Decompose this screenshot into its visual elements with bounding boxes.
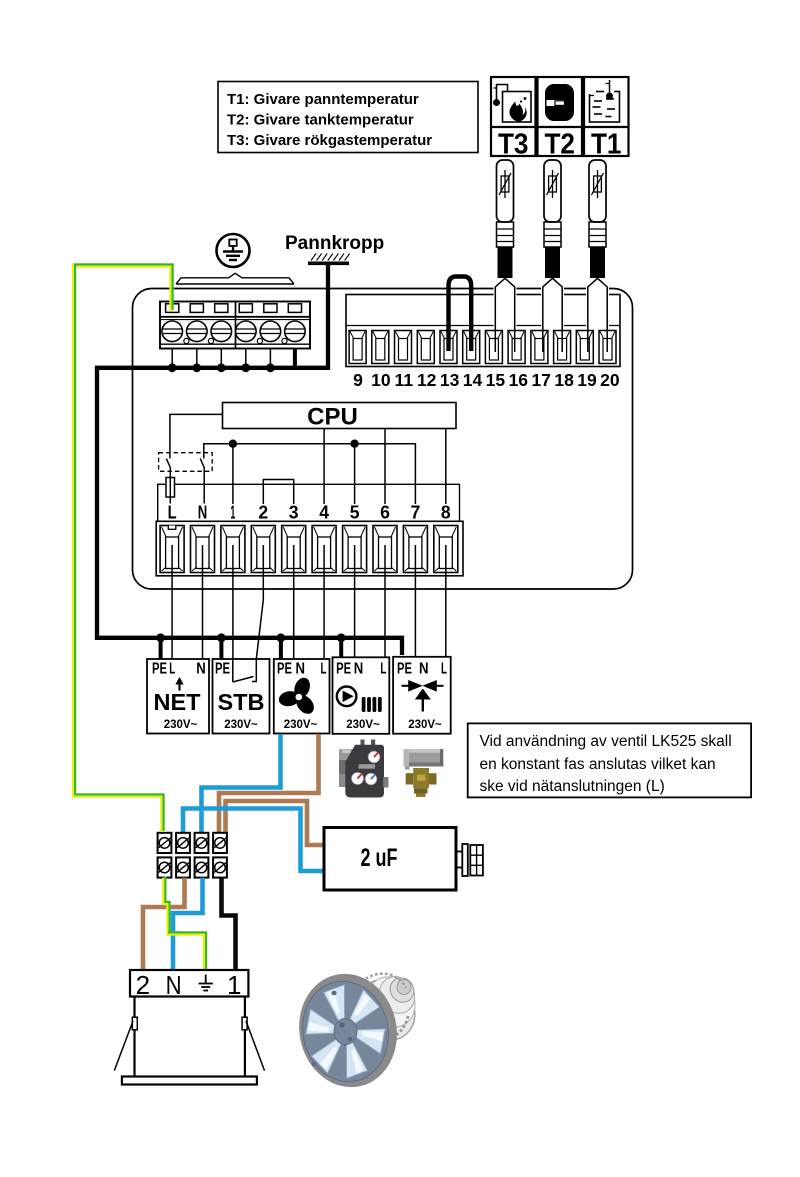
- svg-text:2: 2: [136, 970, 150, 1000]
- svg-text:230V~: 230V~: [224, 719, 258, 731]
- svg-text:1: 1: [230, 502, 235, 523]
- svg-text:15: 15: [486, 370, 506, 390]
- svg-text:230V~: 230V~: [164, 719, 198, 731]
- svg-text:230V~: 230V~: [346, 719, 380, 731]
- svg-text:3: 3: [289, 502, 299, 523]
- svg-text:10: 10: [371, 370, 391, 390]
- svg-text:9: 9: [353, 370, 363, 390]
- svg-text:13: 13: [440, 370, 460, 390]
- svg-text:PE: PE: [152, 661, 167, 678]
- svg-text:11: 11: [395, 370, 414, 390]
- svg-text:Pannkropp: Pannkropp: [285, 233, 384, 254]
- svg-text:1: 1: [227, 970, 241, 1000]
- svg-text:ske vid nätanslutningen (L): ske vid nätanslutningen (L): [480, 778, 665, 795]
- svg-text:L: L: [169, 661, 175, 678]
- svg-text:14: 14: [463, 370, 483, 390]
- svg-text:Vid användning av ventil LK525: Vid användning av ventil LK525 skall: [480, 733, 732, 750]
- svg-text:2 uF: 2 uF: [361, 844, 398, 872]
- svg-text:230V~: 230V~: [284, 719, 318, 731]
- svg-text:8: 8: [441, 502, 451, 523]
- svg-text:4: 4: [319, 502, 329, 523]
- svg-text:7: 7: [411, 502, 421, 523]
- svg-text:L: L: [321, 661, 327, 678]
- svg-text:L: L: [168, 502, 177, 523]
- svg-text:CPU: CPU: [307, 404, 358, 431]
- svg-text:T1: T1: [591, 129, 622, 161]
- svg-text:N: N: [198, 502, 208, 523]
- svg-text:5: 5: [350, 502, 360, 523]
- svg-text:6: 6: [380, 502, 390, 523]
- svg-text:en konstant fas anslutas vilke: en konstant fas anslutas vilket kan: [480, 756, 716, 773]
- svg-text:230V~: 230V~: [408, 719, 442, 731]
- svg-text:16: 16: [509, 370, 529, 390]
- svg-text:19: 19: [577, 370, 597, 390]
- svg-text:L: L: [441, 661, 447, 678]
- svg-text:N: N: [419, 661, 429, 678]
- svg-text:12: 12: [417, 370, 437, 390]
- svg-text:2: 2: [258, 502, 268, 523]
- svg-text:NET: NET: [154, 689, 202, 715]
- svg-text:N: N: [296, 661, 306, 678]
- svg-text:18: 18: [554, 370, 574, 390]
- svg-text:T2: T2: [544, 129, 575, 161]
- svg-text:N: N: [166, 970, 182, 1000]
- svg-text:N: N: [196, 661, 206, 678]
- svg-text:PE: PE: [336, 661, 351, 678]
- svg-text:N: N: [354, 661, 364, 678]
- svg-text:PE: PE: [397, 661, 412, 678]
- svg-text:PE: PE: [277, 661, 292, 678]
- svg-text:17: 17: [531, 370, 550, 390]
- svg-text:T3: Givare rökgastemperatur: T3: Givare rökgastemperatur: [227, 132, 432, 149]
- svg-text:T2: Givare tanktemperatur: T2: Givare tanktemperatur: [227, 112, 414, 129]
- svg-text:L: L: [380, 661, 386, 678]
- svg-text:20: 20: [600, 370, 620, 390]
- svg-text:PE: PE: [215, 661, 230, 678]
- svg-text:STB: STB: [218, 689, 265, 715]
- svg-text:T1: Givare panntemperatur: T1: Givare panntemperatur: [227, 91, 419, 108]
- svg-text:T3: T3: [498, 129, 529, 161]
